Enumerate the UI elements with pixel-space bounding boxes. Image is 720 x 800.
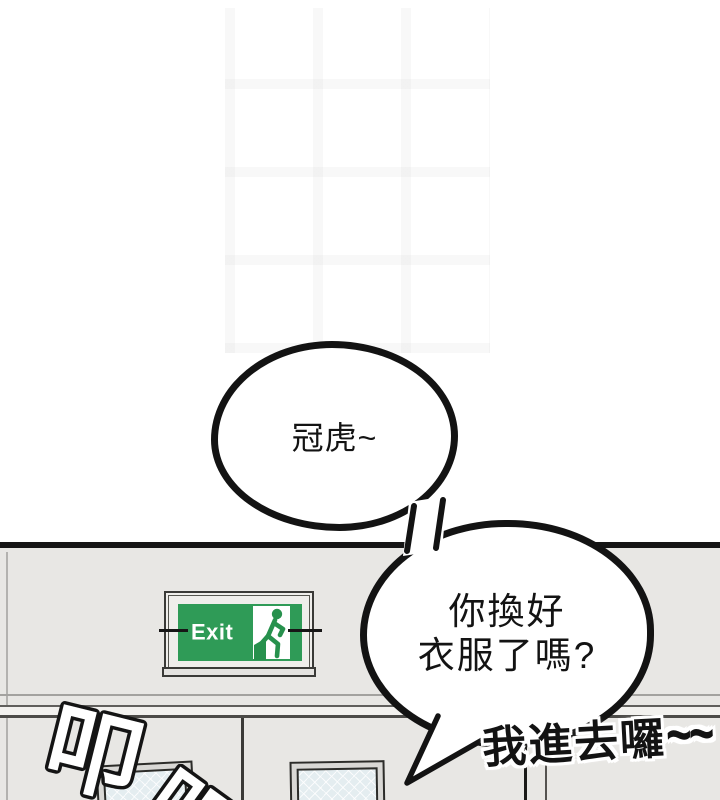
exit-sign-panel: Exit xyxy=(178,604,302,661)
speech-bubble-2-line-1: 你換好 xyxy=(449,590,566,634)
wall-edge-line xyxy=(6,552,8,800)
exit-sign-label: Exit xyxy=(191,619,233,645)
knock-sfx-glyph: 叩 xyxy=(146,764,251,800)
exit-sign-mount-line-left xyxy=(159,629,188,632)
exit-sign: Exit xyxy=(164,591,314,672)
door-window-glass xyxy=(297,767,379,800)
knock-sfx-partial: 叩 xyxy=(146,764,276,800)
exit-sign-mount-line-right xyxy=(288,629,322,632)
knock-sfx-glyph: 叩 xyxy=(36,692,153,800)
handwritten-note-text: 我進去囉 xyxy=(481,714,667,773)
exit-door-pictogram xyxy=(253,606,290,659)
faint-watermark xyxy=(225,8,490,353)
comic-panel: Exit 叩 叩 冠虎~ xyxy=(0,0,720,800)
handwritten-note: 我進去囉~~ xyxy=(480,700,712,776)
speech-bubble-1-text: 冠虎~ xyxy=(292,413,378,459)
exit-sign-bottom-lip xyxy=(162,667,316,677)
speech-bubble-1: 冠虎~ xyxy=(211,341,458,531)
handwritten-note-squiggle: ~~ xyxy=(664,698,713,773)
speech-bubble-2-line-2: 衣服了嗎? xyxy=(418,634,597,678)
door-window-right xyxy=(289,760,385,800)
running-man-icon xyxy=(253,606,290,661)
